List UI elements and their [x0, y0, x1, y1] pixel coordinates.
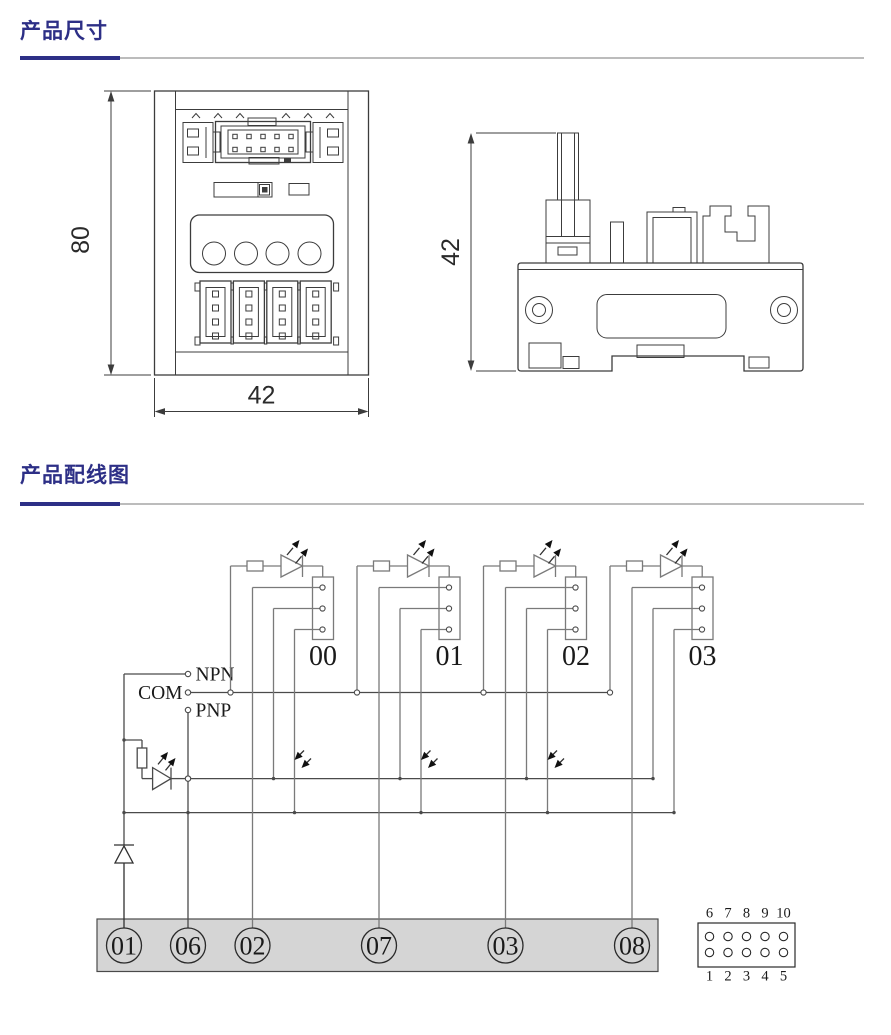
channel-label: 02 [562, 641, 590, 672]
channel-resistor [374, 561, 390, 571]
section-title-wiring: 产品配线图 [20, 459, 130, 489]
pin-label: 10 [776, 906, 791, 922]
side-connector-block [647, 208, 697, 264]
front-terminal-blocks [195, 281, 339, 345]
channel-00: 00 [228, 540, 337, 928]
side-height-dimension: 42 [437, 133, 556, 371]
side-bracket [703, 206, 769, 263]
wiring-diagram: NPN COM PNP 00 [0, 518, 891, 1000]
photocoupler-arrows [421, 751, 438, 769]
title-underline-accent [20, 502, 120, 506]
com-junction [354, 690, 359, 695]
title-underline-rule [120, 57, 864, 59]
pin-label: 9 [761, 906, 768, 922]
com-label: COM [138, 683, 182, 704]
idc-pin-map: 6 7 8 9 10 1 2 3 4 5 [698, 906, 795, 985]
npn-label: NPN [196, 665, 235, 686]
terminal-block [200, 281, 233, 344]
side-screw-left [526, 297, 553, 324]
front-width-label: 42 [248, 382, 276, 410]
strip-terminal-label: 07 [366, 932, 392, 961]
pin-label: 3 [743, 969, 750, 985]
terminal-block [233, 281, 266, 344]
pnp-label: PNP [196, 701, 232, 722]
channel-02: 02 [481, 540, 590, 928]
strip-terminal-label: 01 [111, 932, 137, 961]
title-underline-accent [20, 56, 120, 60]
pin-label: 2 [724, 969, 731, 985]
com-junction [481, 690, 486, 695]
channel-label: 00 [309, 641, 337, 672]
terminal-block [300, 281, 331, 343]
title-underline-rule [120, 503, 864, 505]
npn-terminal [185, 671, 190, 676]
front-view: 80 42 [67, 91, 369, 417]
idc-pins [233, 134, 293, 151]
channel-led [661, 540, 688, 577]
channel-01: 01 [354, 540, 463, 928]
strip-terminal-label: 02 [240, 932, 266, 961]
side-din-clamp [546, 133, 590, 263]
channel-led [281, 540, 308, 577]
pin-label: 6 [706, 906, 713, 922]
protection-diode [114, 845, 134, 928]
photocoupler-arrows [548, 751, 565, 769]
side-height-label: 42 [437, 238, 465, 266]
strip-terminal-label: 06 [175, 932, 201, 961]
channel-led [534, 540, 561, 577]
pin-label: 8 [743, 906, 750, 922]
channel-resistor [627, 561, 643, 571]
com-terminal [185, 690, 190, 695]
strip-terminal-label: 08 [619, 932, 645, 961]
section-title-dimensions: 产品尺寸 [20, 15, 108, 45]
power-resistor [137, 748, 147, 768]
side-screw-right [771, 297, 798, 324]
photocoupler-arrows [295, 751, 312, 769]
bus-junction-node [185, 776, 190, 781]
pin-label: 7 [724, 906, 731, 922]
side-view: 42 [437, 133, 803, 371]
side-post [611, 222, 624, 263]
front-switch-row [214, 183, 309, 198]
dimension-drawings: 80 42 [0, 75, 891, 435]
front-height-label: 80 [67, 226, 95, 254]
pnp-terminal [185, 707, 190, 712]
terminal-block [267, 281, 300, 344]
pin-label: 1 [706, 969, 713, 985]
pin-label: 5 [780, 969, 787, 985]
power-led [153, 752, 186, 790]
front-width-dimension: 42 [155, 378, 369, 417]
junction-dots [122, 738, 675, 814]
com-junction [607, 690, 612, 695]
channel-label: 03 [689, 641, 717, 672]
strip-terminal-label: 03 [493, 932, 519, 961]
channel-led [408, 540, 435, 577]
front-idc-connector [183, 114, 343, 165]
channel-label: 01 [436, 641, 464, 672]
front-height-dimension: 80 [67, 91, 151, 375]
power-indicator-circuit [114, 674, 188, 928]
channel-resistor [500, 561, 516, 571]
channel-resistor [247, 561, 263, 571]
com-junction [228, 690, 233, 695]
front-indicator-panel [191, 215, 334, 273]
channel-03: 03 [607, 540, 716, 928]
pin-label: 4 [761, 969, 769, 985]
